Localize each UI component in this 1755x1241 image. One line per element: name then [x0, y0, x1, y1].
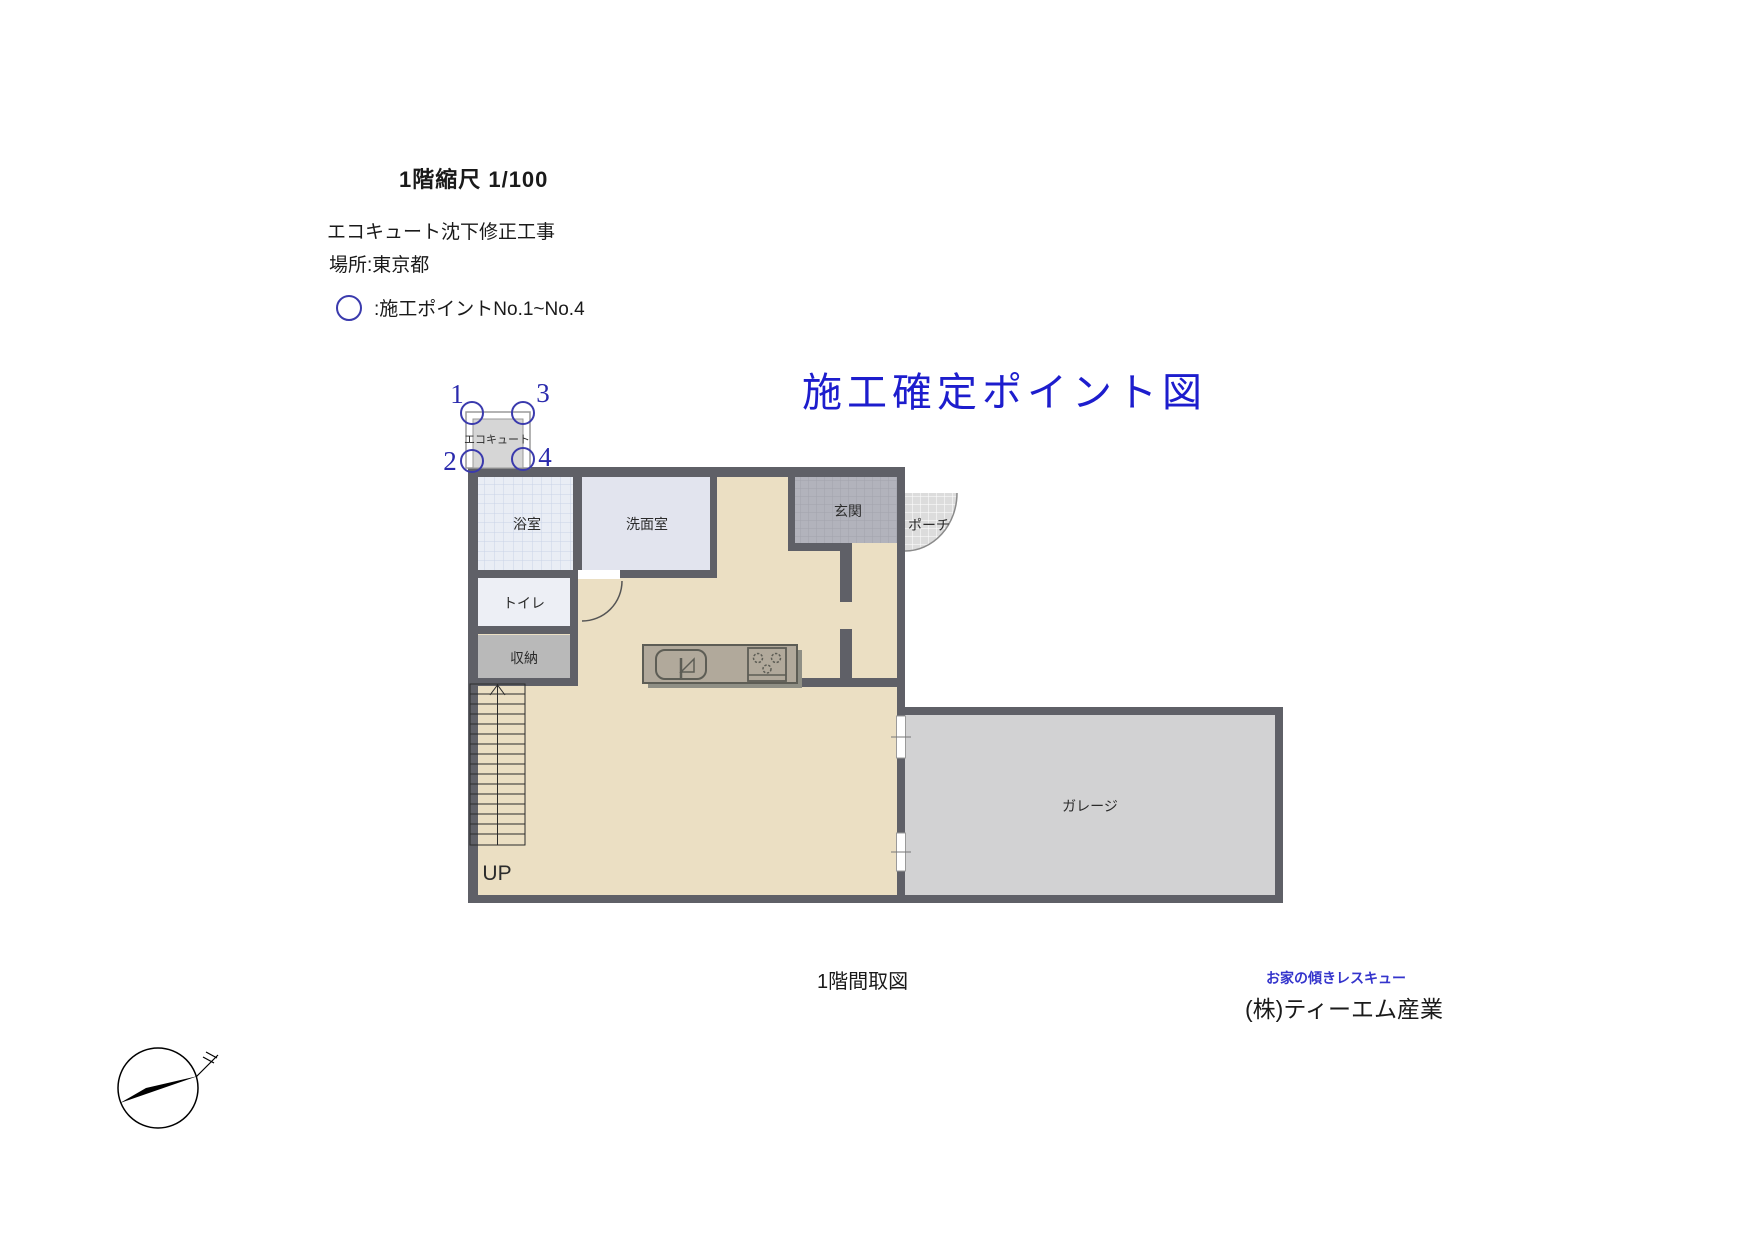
- washroom-label: 洗面室: [626, 516, 668, 532]
- stairs-up-label: UP: [482, 862, 511, 885]
- bath-label: 浴室: [513, 516, 541, 532]
- point-number-3: 3: [536, 378, 550, 408]
- north-compass-icon: [118, 1048, 218, 1128]
- floor-plan: エコキュート 1 3 2 4 浴室 洗面室 トイレ 収納 玄関 ポーチ ガレージ…: [0, 0, 1755, 1241]
- page: 1階縮尺 1/100 エコキュート沈下修正工事 場所:東京都 :施工ポイントNo…: [0, 0, 1755, 1241]
- plan-caption: 1階間取図: [817, 965, 908, 994]
- ecocute-unit: エコキュート 1 3 2 4: [443, 378, 552, 476]
- porch-label: ポーチ: [908, 517, 950, 533]
- storage-label: 収納: [510, 650, 538, 666]
- ecocute-label: エコキュート: [464, 434, 530, 446]
- kitchen-counter: [643, 645, 802, 688]
- entrance-label: 玄関: [834, 503, 862, 519]
- point-number-1: 1: [450, 379, 464, 409]
- point-number-4: 4: [538, 442, 552, 472]
- point-number-2: 2: [443, 446, 457, 476]
- garage-label: ガレージ: [1062, 798, 1118, 814]
- toilet-label: トイレ: [503, 595, 545, 611]
- company-name: (株)ティーエム産業: [1245, 990, 1443, 1024]
- company-tagline: お家の傾きレスキュー: [1266, 968, 1406, 988]
